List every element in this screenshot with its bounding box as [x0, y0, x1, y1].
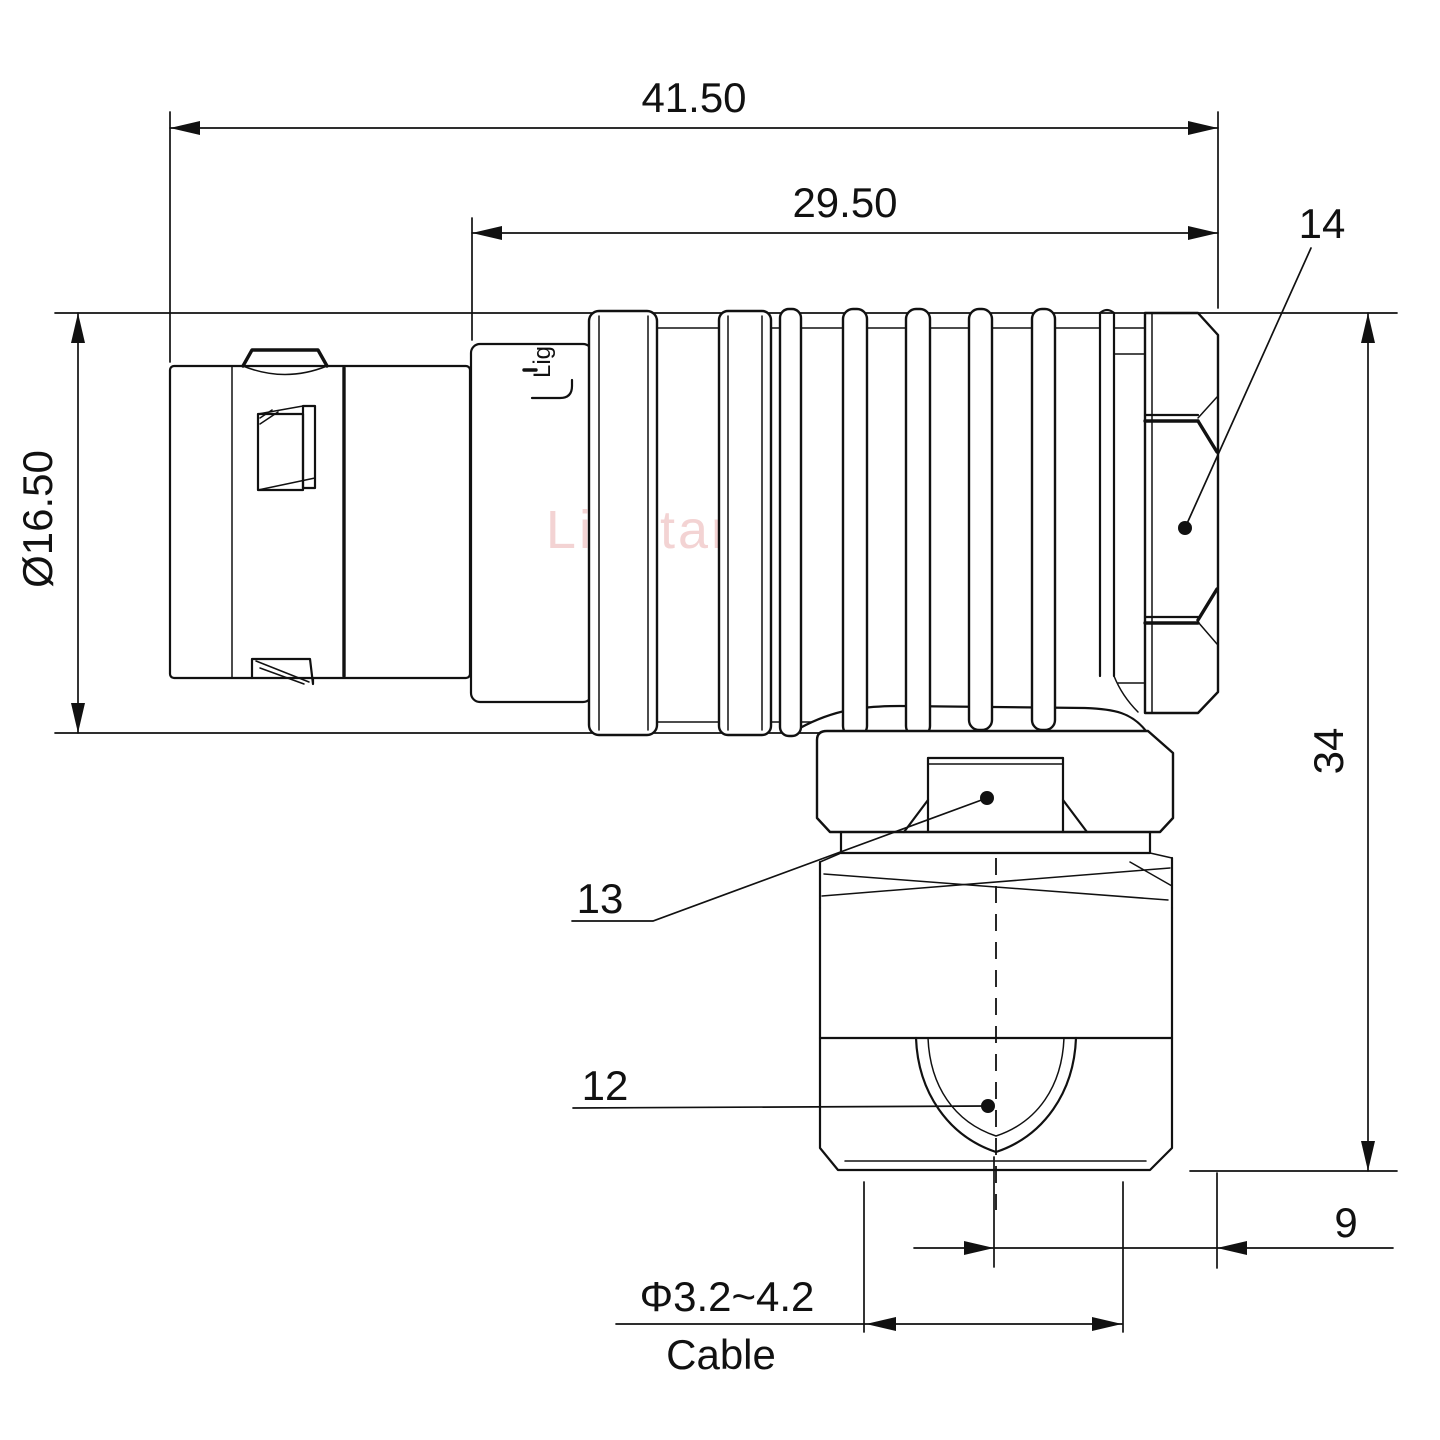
bayonet-window	[258, 406, 315, 490]
dim-side-offset: 9	[914, 1199, 1393, 1255]
rib-3	[906, 309, 930, 736]
dim-cable-range-label: Φ3.2~4.2	[640, 1273, 815, 1320]
rib-ring-1	[719, 311, 771, 735]
technical-drawing-page: Lightany	[0, 0, 1440, 1440]
callout-cable-bushing-label: 12	[582, 1062, 629, 1109]
dim-cable: Φ3.2~4.2 Cable	[616, 1273, 1122, 1378]
coupling-nut	[1145, 313, 1218, 713]
dim-overall-length: 41.50	[170, 74, 1218, 135]
connector-drawing: Lightany	[0, 0, 1440, 1440]
rib-1	[780, 309, 801, 736]
rib-ring-2	[1100, 310, 1145, 712]
dim-side-offset-label: 9	[1334, 1199, 1357, 1246]
rib-5	[1032, 309, 1055, 730]
dim-overall-length-label: 41.50	[641, 74, 746, 121]
engraving-mark	[532, 380, 572, 398]
callout-coupling-nut-label: 14	[1299, 200, 1346, 247]
body-engraving: Lig	[529, 346, 556, 378]
dim-front-diameter-label: Ø16.50	[14, 450, 61, 588]
bayonet-lug	[243, 350, 327, 366]
elbow-hex-body	[817, 731, 1173, 853]
rib-4	[969, 309, 992, 730]
front-sleeve	[170, 350, 470, 684]
dim-cable-word-label: Cable	[666, 1331, 776, 1378]
rib-2	[843, 309, 867, 736]
keyway-notch	[252, 659, 313, 684]
callout-cable-bushing: 12	[573, 1062, 995, 1113]
dim-front-diameter: Ø16.50	[14, 313, 85, 733]
dim-rear-length: 29.50	[472, 179, 1218, 240]
dim-height: 34	[1305, 313, 1375, 1171]
cable-bushing	[820, 858, 1172, 1210]
callout-back-nut-label: 13	[577, 875, 624, 922]
dim-rear-length-label: 29.50	[792, 179, 897, 226]
dim-height-label: 34	[1305, 728, 1352, 775]
